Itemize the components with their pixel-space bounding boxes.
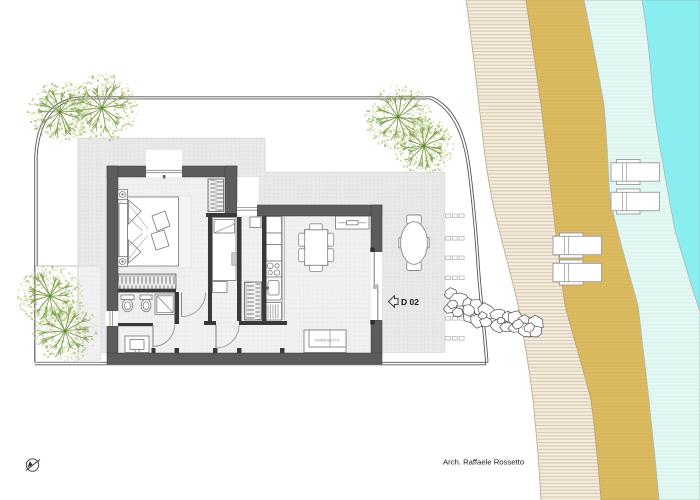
svg-text:Arch. Raffaele Rossetto: Arch. Raffaele Rossetto [443, 458, 524, 467]
svg-text:DIVANOLETTO: DIVANOLETTO [314, 339, 339, 343]
svg-text:D 02: D 02 [401, 297, 419, 307]
